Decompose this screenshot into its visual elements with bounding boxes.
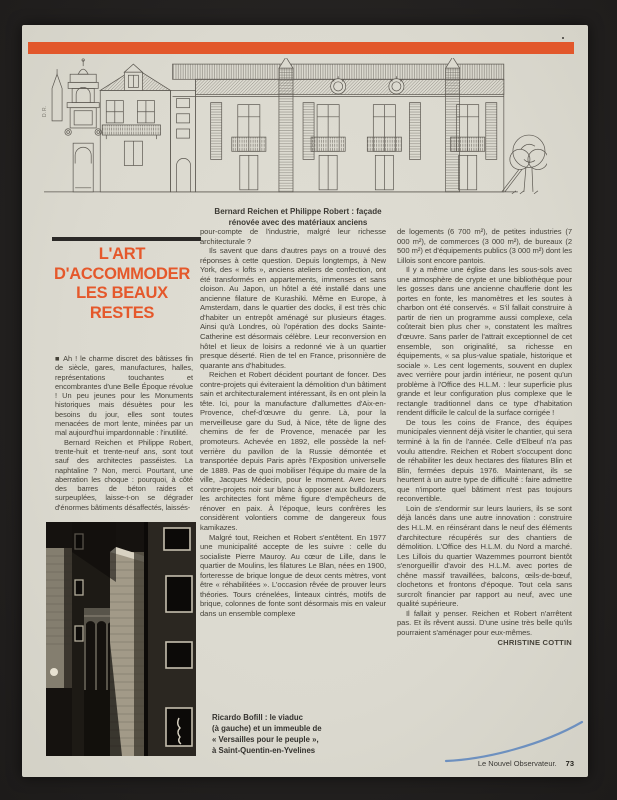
author-byline: CHRISTINE COTTIN [397, 638, 572, 648]
photo-caption-line1: Ricardo Bofill : le viaduc [212, 712, 392, 723]
paragraph: ■ Ah ! le charme discret des bâtisses fi… [55, 354, 193, 438]
viaduct-photo-art [46, 522, 196, 756]
paragraph: pour-compte de l'industrie, malgré leur … [200, 227, 386, 246]
page-footer: Le Nouvel Observateur.73 [478, 759, 574, 768]
paragraph: Il y a même une église dans les sous-sol… [397, 265, 572, 418]
photo-caption: Ricardo Bofill : le viaduc (à gauche) et… [212, 712, 392, 756]
scanned-magazine-page: { "colors":{"accent_orange":"#e2572b","p… [0, 0, 617, 800]
paragraph: de logements (6 700 m²), de petites indu… [397, 227, 572, 265]
magazine-page: D.R. Bernard Reichen et Philippe Robert … [22, 25, 588, 777]
photo-credit: D.R. [42, 105, 48, 117]
facade-drawing [40, 58, 547, 202]
photo-caption-line2: (à gauche) et un immeuble de [212, 723, 392, 734]
photo-caption-line4: à Saint-Quentin-en-Yvelines [212, 745, 392, 756]
photo-caption-line3: « Versailles pour le peuple », [212, 734, 392, 745]
paragraph: Malgré tout, Reichen et Robert s'entêten… [200, 533, 386, 619]
text-column-1: ■ Ah ! le charme discret des bâtisses fi… [55, 354, 193, 522]
title-line: L'ART [48, 245, 196, 265]
headline-rule [52, 237, 201, 241]
title-line: RESTES [48, 304, 196, 324]
title-line: LES BEAUX [48, 284, 196, 304]
facade-caption-line1: Bernard Reichen et Philippe Robert : faç… [172, 206, 424, 217]
viaduct-photo [46, 522, 196, 756]
paragraph: Il fallait y penser. Reichen et Robert n… [397, 609, 572, 638]
footer-magazine-name: Le Nouvel Observateur. [478, 759, 557, 768]
paragraph: Bernard Reichen et Philippe Robert, tren… [55, 438, 193, 512]
text-column-2: pour-compte de l'industrie, malgré leur … [200, 227, 386, 687]
title-line: D'ACCOMMODER [48, 265, 196, 285]
paragraph: Reichen et Robert décident pourtant de f… [200, 370, 386, 532]
top-accent-bar [28, 42, 574, 54]
facade-caption: Bernard Reichen et Philippe Robert : faç… [172, 206, 424, 228]
article-title: L'ART D'ACCOMMODER LES BEAUX RESTES [48, 245, 196, 323]
paragraph: Ils savent que dans d'autres pays on a t… [200, 246, 386, 370]
footer-page-number: 73 [566, 759, 574, 768]
dust-speck [562, 37, 564, 39]
text-column-3: de logements (6 700 m²), de petites indu… [397, 227, 572, 705]
paragraph: Loin de s'endormir sur leurs lauriers, i… [397, 504, 572, 609]
paragraph: De tous les coins de France, des équipes… [397, 418, 572, 504]
